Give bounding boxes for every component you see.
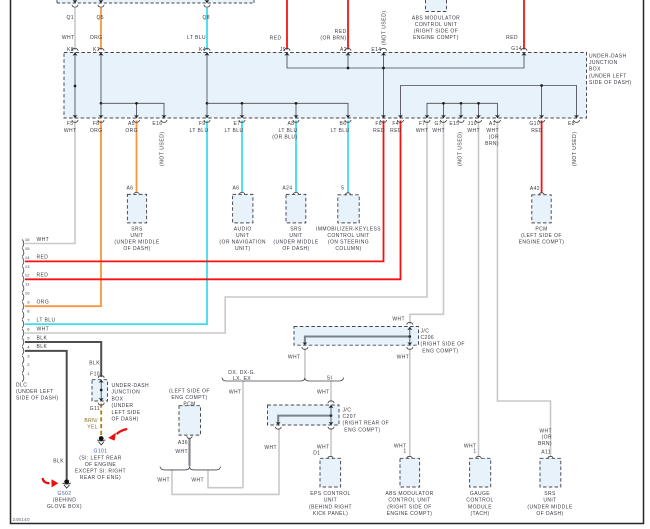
svg-text:RED: RED — [531, 128, 543, 134]
svg-text:(ON STEERING: (ON STEERING — [328, 240, 369, 246]
svg-text:WHT: WHT — [64, 128, 77, 134]
svg-text:EPS CONTROL: EPS CONTROL — [310, 491, 350, 497]
svg-text:(UNDER LEFT: (UNDER LEFT — [589, 73, 627, 79]
svg-text:OF DASH): OF DASH) — [123, 246, 150, 252]
svg-text:E8: E8 — [568, 121, 575, 127]
svg-text:COLUMN): COLUMN) — [335, 246, 361, 252]
svg-text:K7: K7 — [93, 47, 100, 53]
svg-text:13: 13 — [25, 264, 30, 269]
svg-text:E15: E15 — [449, 121, 459, 127]
svg-text:KICK PANEL): KICK PANEL) — [313, 511, 348, 517]
svg-text:UNIT): UNIT) — [235, 246, 250, 252]
svg-text:WHT: WHT — [486, 128, 499, 134]
svg-text:OF DASH): OF DASH) — [112, 417, 139, 423]
svg-text:ABS MODULATOR: ABS MODULATOR — [385, 491, 433, 497]
svg-text:OF DASH): OF DASH) — [282, 246, 309, 252]
svg-text:CONTROL UNIT: CONTROL UNIT — [388, 498, 430, 504]
svg-text:UNIT: UNIT — [289, 233, 302, 239]
svg-text:ENG COMPT): ENG COMPT) — [344, 427, 380, 433]
svg-text:YEL: YEL — [87, 424, 98, 430]
svg-text:ORG: ORG — [90, 35, 103, 41]
svg-text:WHT: WHT — [317, 390, 330, 396]
svg-text:1: 1 — [473, 449, 476, 455]
svg-text:(OR BRN): (OR BRN) — [320, 35, 346, 41]
svg-text:ORG: ORG — [125, 128, 138, 134]
svg-text:Q5: Q5 — [96, 15, 104, 21]
svg-text:LX. EX: LX. EX — [233, 376, 251, 382]
svg-text:WHT: WHT — [397, 354, 410, 360]
svg-text:UNDER-DASH: UNDER-DASH — [112, 383, 150, 389]
svg-text:LT BLU: LT BLU — [224, 128, 243, 134]
svg-text:248140: 248140 — [13, 517, 31, 522]
svg-text:11: 11 — [25, 282, 30, 287]
svg-text:Q1: Q1 — [66, 15, 74, 21]
svg-text:BLK: BLK — [53, 458, 64, 464]
svg-text:GAUGE: GAUGE — [470, 491, 490, 497]
svg-text:BRN): BRN) — [485, 141, 499, 147]
svg-text:ENGINE COMPT): ENGINE COMPT) — [413, 35, 459, 41]
svg-text:G10: G10 — [529, 121, 540, 127]
svg-text:K8: K8 — [67, 47, 74, 53]
svg-text:WHT: WHT — [191, 478, 204, 484]
svg-text:CONTROL: CONTROL — [466, 498, 493, 504]
svg-text:REAR OF ENG): REAR OF ENG) — [80, 475, 121, 481]
svg-text:(TACH): (TACH) — [470, 511, 489, 517]
svg-text:G14: G14 — [511, 46, 522, 52]
svg-text:CONTROL UNIT: CONTROL UNIT — [415, 22, 457, 28]
svg-text:A24: A24 — [282, 186, 292, 192]
svg-text:(UNDER LEFT: (UNDER LEFT — [16, 389, 54, 395]
svg-text:GLOVE BOX): GLOVE BOX) — [47, 504, 82, 510]
svg-text:A1: A1 — [489, 121, 496, 127]
svg-text:(LEFT SIDE OF: (LEFT SIDE OF — [169, 388, 210, 394]
svg-text:(NOT USED): (NOT USED) — [382, 10, 388, 45]
svg-text:LT BLU: LT BLU — [189, 128, 208, 134]
svg-text:ABS MODULATOR: ABS MODULATOR — [412, 15, 460, 21]
svg-text:G101: G101 — [94, 449, 108, 455]
svg-text:OF ENGINE: OF ENGINE — [85, 462, 117, 468]
svg-text:DX. DX-G.: DX. DX-G. — [228, 370, 255, 376]
svg-text:LEFT SIDE: LEFT SIDE — [112, 410, 141, 416]
svg-text:(UNDER MIDDLE: (UNDER MIDDLE — [114, 240, 159, 246]
svg-text:J/C: J/C — [421, 328, 430, 334]
svg-text:F7: F7 — [419, 121, 426, 127]
svg-text:A5: A5 — [128, 121, 135, 127]
svg-text:Q8: Q8 — [202, 15, 210, 21]
svg-text:SI: SI — [327, 375, 333, 381]
svg-text:F8: F8 — [93, 121, 100, 127]
svg-text:C206: C206 — [421, 335, 435, 341]
svg-text:WHT: WHT — [467, 128, 480, 134]
svg-text:WHT: WHT — [157, 478, 170, 484]
svg-text:SRS: SRS — [131, 227, 143, 233]
svg-text:(OR NAVIGATION: (OR NAVIGATION — [219, 240, 266, 246]
svg-text:WHT: WHT — [539, 429, 552, 435]
svg-text:WHT: WHT — [416, 128, 429, 134]
svg-text:IMMOBILIZER-KEYLESS: IMMOBILIZER-KEYLESS — [316, 227, 381, 233]
svg-text:(RIGHT SIDE OF: (RIGHT SIDE OF — [387, 504, 431, 510]
svg-text:UNIT: UNIT — [236, 233, 249, 239]
svg-text:WHT: WHT — [175, 449, 188, 455]
svg-text:SIDE OF DASH): SIDE OF DASH) — [16, 396, 58, 402]
svg-text:RED: RED — [373, 128, 385, 134]
svg-text:A42: A42 — [530, 186, 540, 192]
svg-text:G502: G502 — [58, 491, 72, 497]
svg-text:(LEFT SIDE OF: (LEFT SIDE OF — [521, 233, 562, 239]
svg-text:(NOT USED): (NOT USED) — [572, 131, 578, 166]
svg-text:RED: RED — [335, 29, 347, 35]
svg-text:UNIT: UNIT — [324, 498, 337, 504]
svg-text:(OR: (OR — [542, 435, 552, 441]
svg-text:(RIGHT REAR OF: (RIGHT REAR OF — [343, 421, 390, 427]
svg-text:SIDE OF DASH): SIDE OF DASH) — [589, 80, 631, 86]
svg-text:WHT: WHT — [37, 237, 50, 243]
svg-text:ORG: ORG — [90, 128, 103, 134]
svg-text:RED: RED — [390, 128, 402, 134]
svg-text:B6: B6 — [340, 121, 347, 127]
svg-text:DLC: DLC — [16, 383, 27, 389]
svg-text:(UNDER MIDDLE: (UNDER MIDDLE — [527, 504, 572, 510]
svg-text:RED: RED — [37, 273, 49, 279]
svg-text:EXCEPT SI: RIGHT: EXCEPT SI: RIGHT — [75, 469, 126, 475]
svg-text:15: 15 — [25, 246, 30, 251]
svg-text:MODULE: MODULE — [468, 504, 492, 510]
svg-text:A2: A2 — [340, 47, 347, 53]
svg-text:J/C: J/C — [343, 407, 352, 413]
svg-text:SRS: SRS — [544, 491, 556, 497]
svg-text:WHT: WHT — [264, 445, 277, 451]
svg-text:K4: K4 — [199, 47, 206, 53]
svg-text:F4: F4 — [392, 121, 399, 127]
svg-text:(NOT USED): (NOT USED) — [458, 131, 464, 166]
svg-text:A11: A11 — [541, 450, 551, 456]
svg-text:(RIGHT SIDE OF: (RIGHT SIDE OF — [414, 28, 458, 34]
svg-text:A8: A8 — [288, 121, 295, 127]
svg-text:AUDIO: AUDIO — [234, 227, 252, 233]
svg-text:G11: G11 — [90, 406, 100, 412]
svg-text:J9: J9 — [280, 47, 286, 53]
svg-text:D1: D1 — [313, 451, 320, 457]
svg-text:UNIT: UNIT — [130, 233, 143, 239]
svg-text:ENG COMPT): ENG COMPT) — [171, 395, 207, 401]
svg-text:(UNDER: (UNDER — [112, 403, 134, 409]
svg-text:E7: E7 — [234, 121, 241, 127]
svg-text:CONTROL UNIT: CONTROL UNIT — [327, 233, 369, 239]
svg-text:(SI: LEFT REAR: (SI: LEFT REAR — [79, 455, 121, 461]
svg-text:LT BLU: LT BLU — [187, 35, 206, 41]
svg-text:E16: E16 — [152, 121, 162, 127]
svg-text:F5: F5 — [67, 121, 74, 127]
svg-text:E14: E14 — [371, 47, 381, 53]
svg-text:(NOT USED): (NOT USED) — [160, 131, 166, 166]
svg-text:C207: C207 — [343, 414, 357, 420]
svg-text:JUNCTION: JUNCTION — [112, 390, 141, 396]
svg-text:(OR: (OR — [489, 134, 499, 140]
svg-text:ENG COMPT): ENG COMPT) — [422, 348, 458, 354]
svg-text:LT BLU: LT BLU — [330, 128, 349, 134]
svg-text:RED: RED — [270, 35, 282, 41]
svg-text:12: 12 — [25, 273, 30, 278]
svg-text:RED: RED — [506, 35, 518, 41]
svg-text:F6: F6 — [375, 121, 382, 127]
svg-text:(RIGHT SIDE OF: (RIGHT SIDE OF — [421, 342, 465, 348]
svg-text:BRN/: BRN/ — [84, 418, 98, 424]
svg-text:A6: A6 — [233, 186, 240, 192]
svg-text:OF DASH): OF DASH) — [536, 511, 563, 517]
svg-text:LT BLU: LT BLU — [278, 128, 297, 134]
svg-text:(OR BLU): (OR BLU) — [272, 134, 297, 140]
svg-text:WHT: WHT — [392, 317, 405, 323]
svg-text:10: 10 — [25, 291, 30, 296]
svg-text:F10: F10 — [90, 372, 100, 378]
svg-text:LT BLU: LT BLU — [37, 317, 56, 323]
svg-text:PCM: PCM — [535, 227, 547, 233]
svg-text:BRN): BRN) — [538, 441, 552, 447]
svg-text:BLK: BLK — [37, 344, 48, 350]
svg-text:1: 1 — [403, 449, 406, 455]
svg-text:BLK: BLK — [37, 335, 48, 341]
svg-text:JUNCTION: JUNCTION — [589, 60, 618, 66]
svg-text:RED: RED — [37, 255, 49, 261]
svg-text:A6: A6 — [127, 186, 134, 192]
svg-text:WHT: WHT — [229, 390, 242, 396]
svg-text:WHT: WHT — [432, 128, 445, 134]
svg-text:J10: J10 — [468, 121, 477, 127]
svg-text:ENGINE COMPT): ENGINE COMPT) — [519, 240, 565, 246]
svg-text:F9: F9 — [199, 121, 206, 127]
svg-text:BOX: BOX — [589, 67, 601, 73]
svg-text:PCM: PCM — [183, 401, 195, 407]
svg-text:16: 16 — [25, 237, 30, 242]
svg-text:UNDER-DASH: UNDER-DASH — [589, 54, 627, 60]
svg-text:SRS: SRS — [290, 227, 302, 233]
svg-text:WHT: WHT — [37, 326, 50, 332]
svg-text:14: 14 — [25, 255, 30, 260]
svg-text:ORG: ORG — [37, 300, 50, 306]
svg-text:BOX: BOX — [112, 396, 124, 402]
svg-text:(BEHIND RIGHT: (BEHIND RIGHT — [309, 504, 352, 510]
svg-text:G7: G7 — [434, 121, 442, 127]
svg-text:5: 5 — [341, 186, 344, 192]
svg-text:WHT: WHT — [62, 35, 75, 41]
svg-text:UNIT: UNIT — [543, 498, 556, 504]
svg-text:ENGINE COMPT): ENGINE COMPT) — [387, 511, 433, 517]
svg-text:(BEHIND: (BEHIND — [53, 497, 77, 503]
svg-text:WHT: WHT — [288, 354, 301, 360]
svg-text:BLK: BLK — [89, 361, 100, 367]
svg-text:(UNDER MIDDLE: (UNDER MIDDLE — [273, 240, 318, 246]
svg-text:A36: A36 — [178, 440, 188, 446]
